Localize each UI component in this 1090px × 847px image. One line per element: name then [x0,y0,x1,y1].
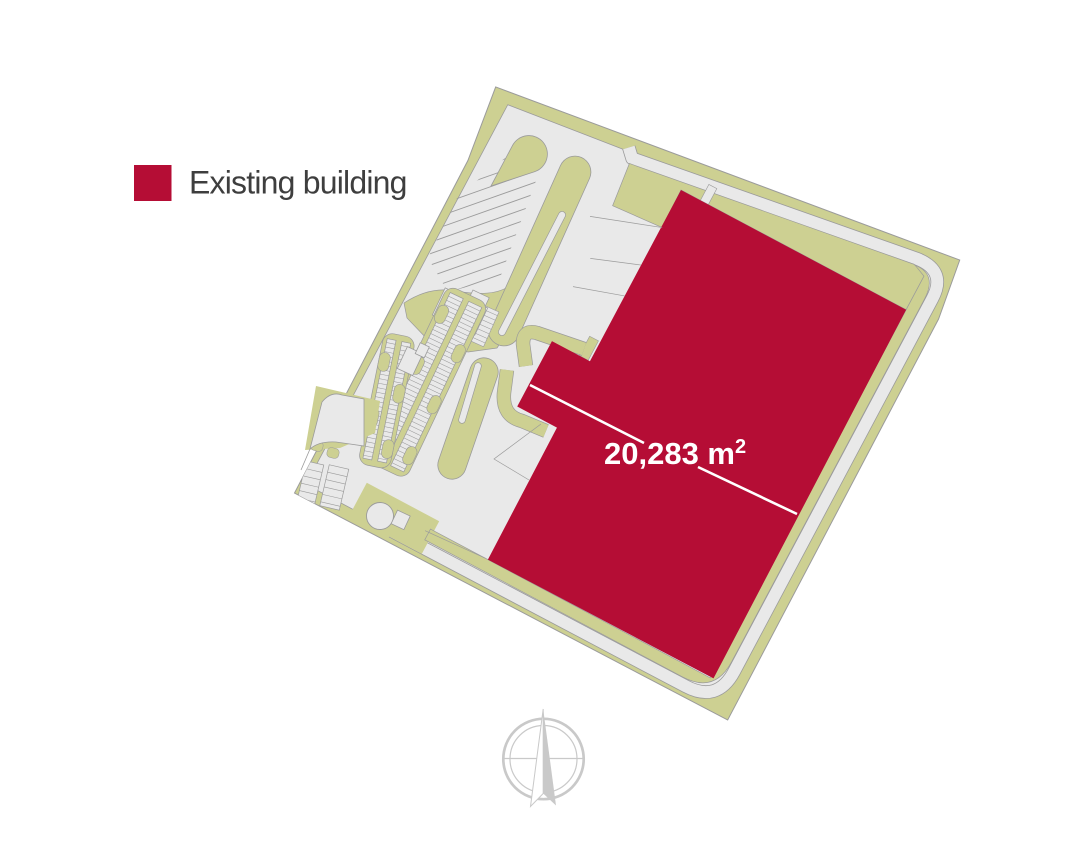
svg-text:Existing building: Existing building [189,165,407,201]
svg-text:20,283 m2: 20,283 m2 [604,436,746,471]
